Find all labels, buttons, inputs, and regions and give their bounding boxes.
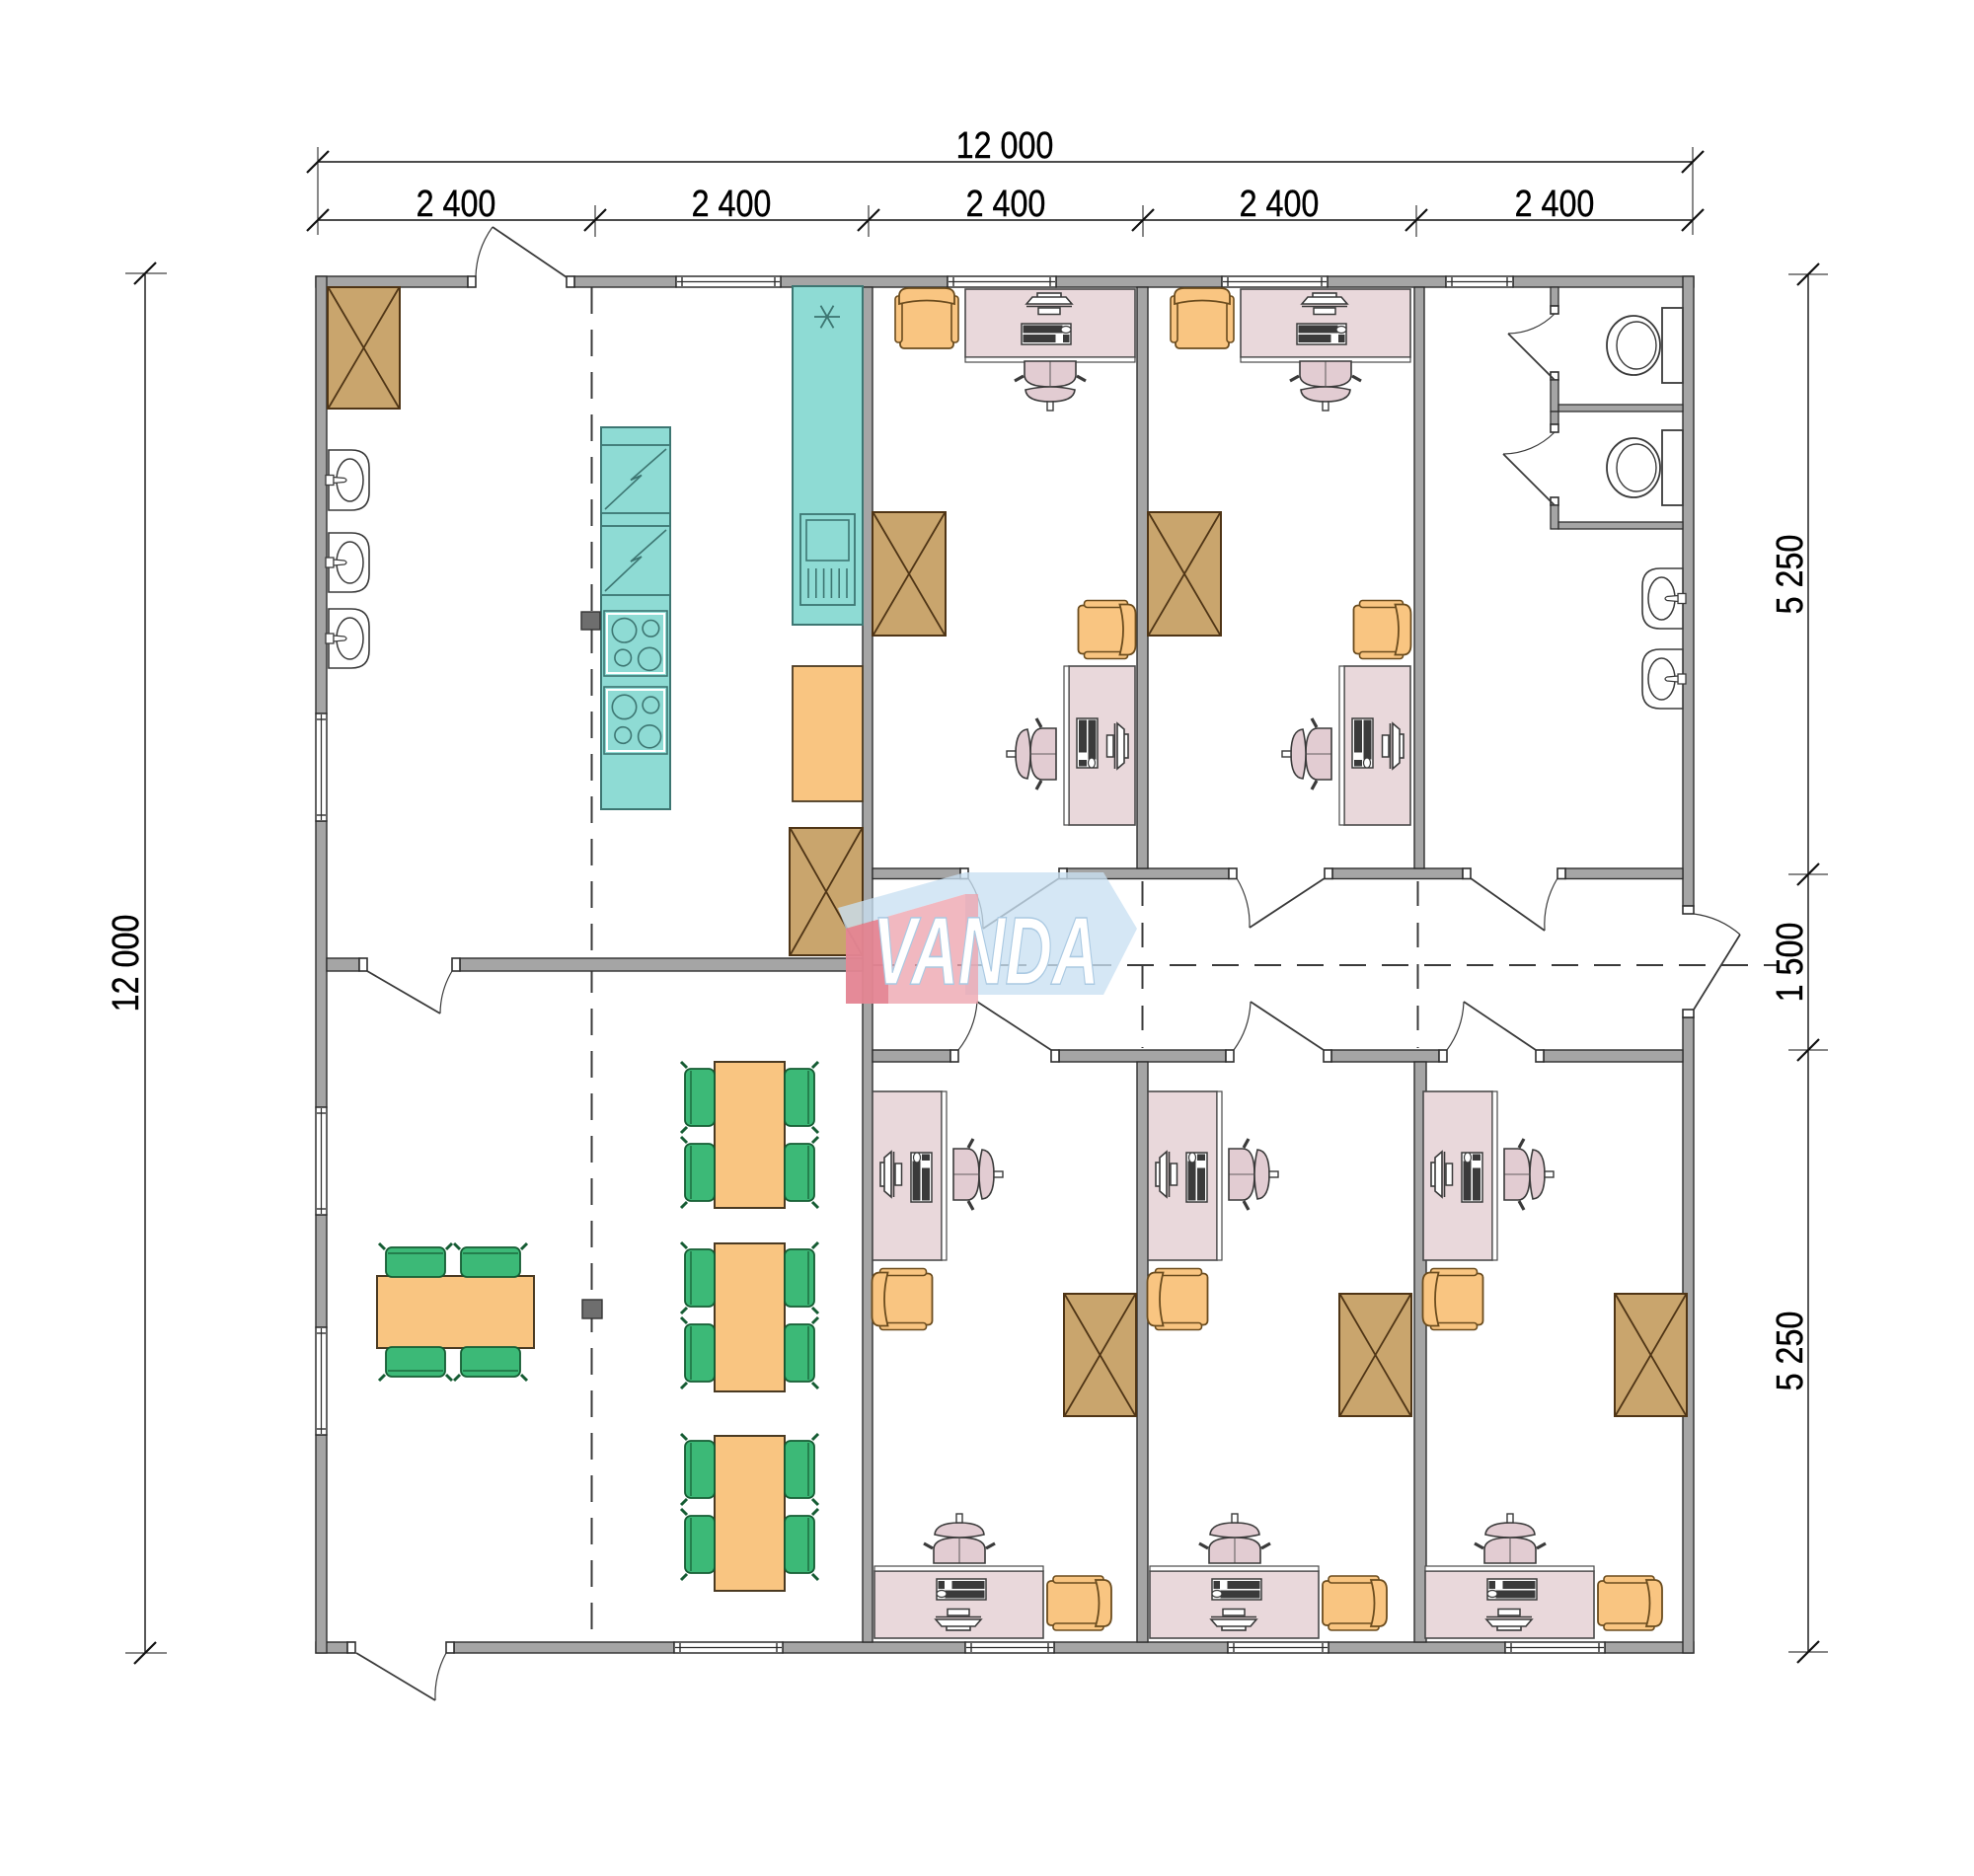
svg-text:1 500: 1 500	[1770, 923, 1811, 1003]
svg-text:2 400: 2 400	[692, 184, 772, 225]
svg-text:12 000: 12 000	[106, 915, 147, 1013]
svg-text:12 000: 12 000	[956, 125, 1054, 167]
svg-text:2 400: 2 400	[1240, 184, 1320, 225]
svg-text:VANDA: VANDA	[873, 897, 1100, 1005]
svg-text:5 250: 5 250	[1770, 535, 1811, 615]
svg-text:2 400: 2 400	[417, 184, 496, 225]
svg-text:2 400: 2 400	[1515, 184, 1595, 225]
svg-text:5 250: 5 250	[1770, 1312, 1811, 1391]
svg-text:2 400: 2 400	[966, 184, 1046, 225]
